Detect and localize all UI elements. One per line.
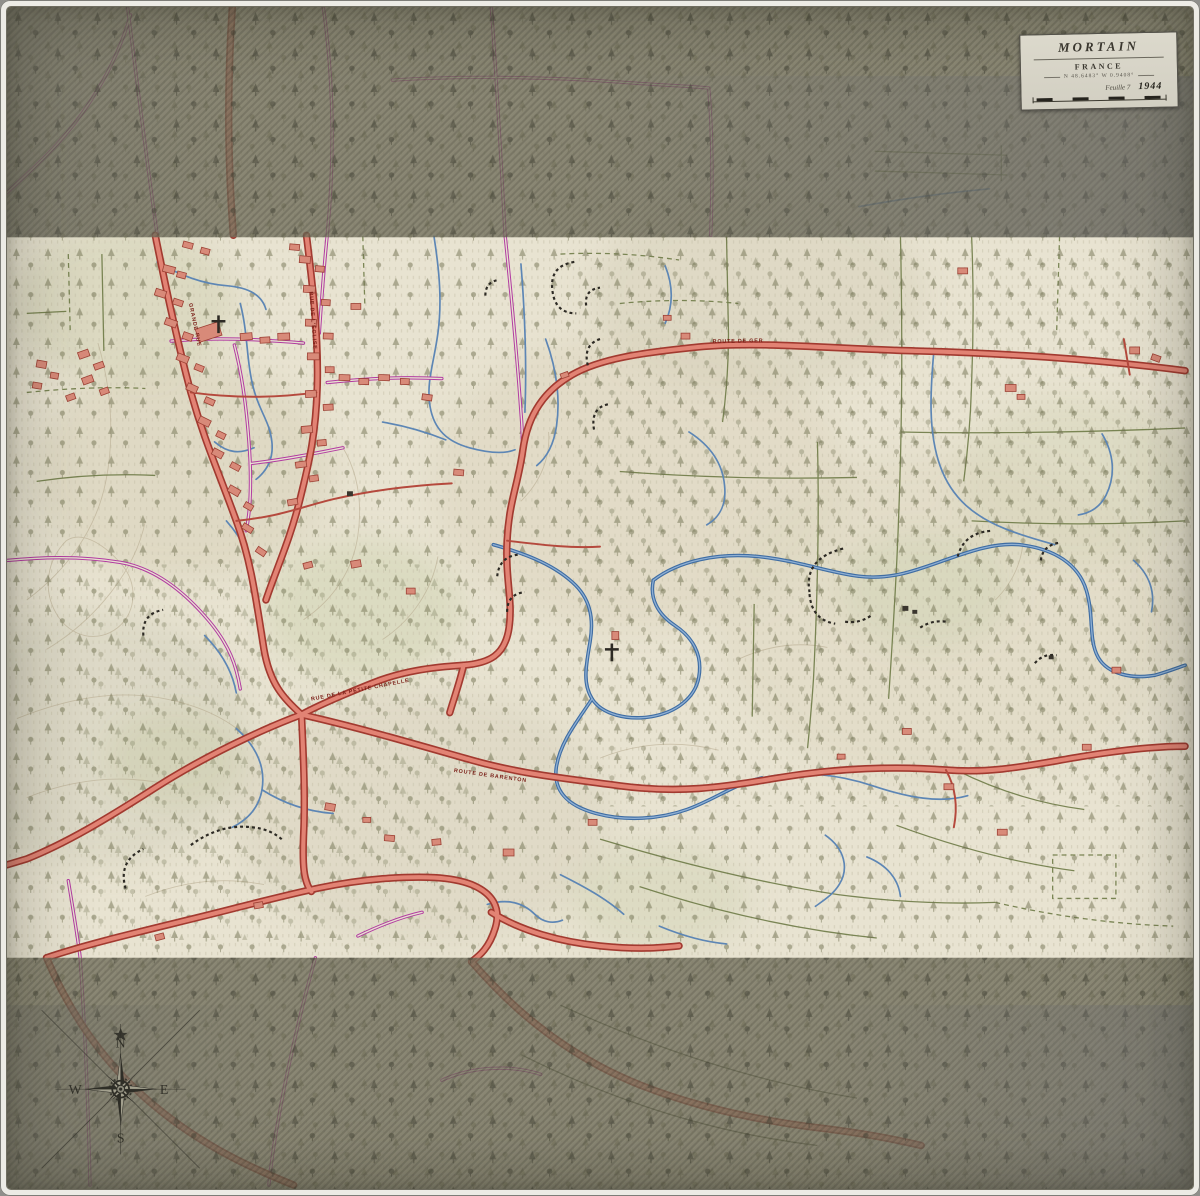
compass-rose: N E S W bbox=[42, 1010, 200, 1168]
map-card[interactable]: ROUTE DE GER RUE DE LA PETITE CHAPELLE R… bbox=[0, 0, 1200, 1196]
scale-bar bbox=[1033, 94, 1167, 104]
compass-east-label: E bbox=[160, 1082, 168, 1097]
coords-dash bbox=[1044, 76, 1060, 77]
fog-of-war-top bbox=[7, 7, 1193, 237]
map-year: 1944 bbox=[1138, 81, 1162, 93]
map-canvas: ROUTE DE GER RUE DE LA PETITE CHAPELLE R… bbox=[7, 7, 1193, 1189]
compass-west-label: W bbox=[69, 1082, 83, 1097]
edition-row: Feuille 7 1944 bbox=[1028, 81, 1170, 95]
map-country: FRANCE bbox=[1028, 61, 1170, 73]
map-svg: ROUTE DE GER RUE DE LA PETITE CHAPELLE R… bbox=[7, 7, 1193, 1189]
road-label: ROUTE DE GER bbox=[713, 338, 764, 345]
map-edition: Feuille 7 bbox=[1105, 83, 1130, 92]
map-title: MORTAIN bbox=[1027, 38, 1169, 57]
fog-of-war-bottom bbox=[7, 958, 1193, 1189]
coords-dash bbox=[1138, 74, 1154, 75]
compass-south-label: S bbox=[117, 1131, 125, 1146]
map-coordinates: N 48.6483° W 0.9408° bbox=[1028, 72, 1170, 81]
cartouche-rule bbox=[1034, 57, 1164, 61]
map-cartouche: MORTAIN FRANCE N 48.6483° W 0.9408° Feui… bbox=[1019, 31, 1179, 110]
